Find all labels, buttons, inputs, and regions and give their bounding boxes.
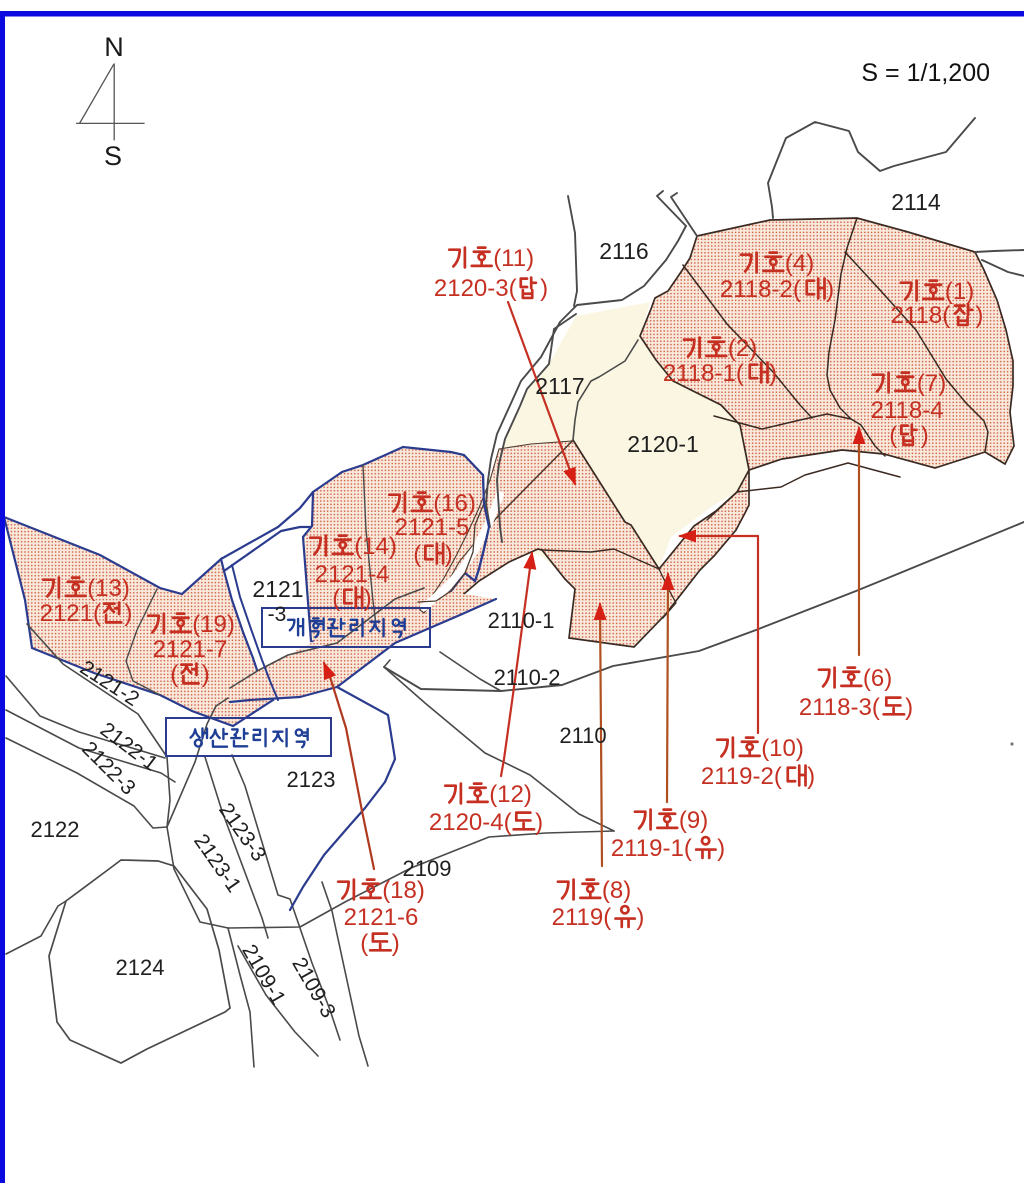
svg-text:(10): (10) — [761, 735, 804, 762]
svg-text:): ) — [636, 904, 644, 931]
svg-text:(7): (7) — [917, 370, 946, 397]
svg-text:2121-6: 2121-6 — [344, 904, 419, 931]
svg-text:): ) — [807, 763, 815, 790]
svg-text:2118-3(: 2118-3( — [799, 694, 880, 721]
svg-text:(: ( — [332, 585, 340, 612]
svg-text:2121-5: 2121-5 — [395, 514, 470, 541]
svg-text:): ) — [392, 930, 400, 957]
svg-text:(16): (16) — [433, 490, 476, 517]
svg-text:(: ( — [889, 422, 897, 449]
svg-text:): ) — [826, 276, 834, 303]
svg-text:2120-3(: 2120-3( — [434, 275, 517, 302]
svg-text:(8): (8) — [602, 877, 631, 904]
svg-text:(6): (6) — [863, 665, 892, 692]
svg-text:(13): (13) — [87, 575, 130, 602]
svg-text:2114: 2114 — [891, 189, 941, 215]
svg-text:(9): (9) — [679, 807, 708, 834]
svg-text:2119(: 2119( — [552, 904, 612, 931]
svg-text:S = 1/1,200: S = 1/1,200 — [861, 59, 990, 87]
svg-text:2118-2(: 2118-2( — [720, 276, 801, 303]
svg-text:): ) — [717, 835, 725, 862]
svg-text:2118-1(: 2118-1( — [663, 360, 744, 387]
svg-text:2117: 2117 — [535, 373, 584, 399]
svg-text:2121: 2121 — [252, 576, 303, 602]
svg-text:(1): (1) — [945, 278, 974, 305]
svg-text:2121-4: 2121-4 — [315, 561, 390, 588]
svg-text:2124: 2124 — [116, 955, 165, 980]
svg-text:(: ( — [360, 930, 368, 957]
svg-text:): ) — [535, 809, 543, 836]
svg-text:2110-2: 2110-2 — [494, 665, 561, 690]
svg-text:N: N — [104, 32, 124, 62]
svg-text:): ) — [540, 275, 548, 302]
svg-text:(4): (4) — [785, 250, 814, 277]
svg-text:2119-2(: 2119-2( — [701, 763, 782, 790]
svg-text:(2): (2) — [728, 335, 757, 362]
svg-text:): ) — [445, 541, 453, 568]
svg-text:2110-1: 2110-1 — [488, 608, 555, 633]
svg-text:-3: -3 — [268, 603, 287, 626]
svg-text:2118-4: 2118-4 — [871, 397, 944, 424]
svg-text:(: ( — [170, 661, 178, 688]
svg-text:): ) — [905, 694, 913, 721]
svg-text:2121(: 2121( — [40, 600, 101, 627]
svg-text:2122: 2122 — [31, 817, 80, 842]
svg-text:(18): (18) — [382, 877, 425, 904]
svg-text:(: ( — [413, 541, 421, 568]
svg-text:2116: 2116 — [599, 238, 648, 264]
svg-text:2120-1: 2120-1 — [627, 431, 699, 457]
svg-text:2121-7: 2121-7 — [153, 636, 228, 663]
svg-text:(14): (14) — [354, 533, 397, 560]
svg-text:): ) — [202, 661, 210, 688]
svg-text:2110: 2110 — [559, 723, 606, 748]
svg-text:(11): (11) — [493, 245, 534, 272]
svg-text:): ) — [364, 585, 372, 612]
svg-text:2120-4(: 2120-4( — [429, 809, 512, 836]
svg-text:): ) — [769, 360, 777, 387]
svg-text:): ) — [124, 600, 132, 627]
svg-text:): ) — [975, 302, 983, 329]
svg-text:): ) — [921, 422, 929, 449]
svg-text:2119-1(: 2119-1( — [611, 835, 692, 862]
svg-text:2118(: 2118( — [891, 302, 951, 329]
svg-text:S: S — [104, 141, 122, 171]
svg-text:(19): (19) — [192, 611, 235, 638]
svg-text:2123: 2123 — [287, 767, 336, 792]
svg-text:(12): (12) — [489, 781, 532, 808]
